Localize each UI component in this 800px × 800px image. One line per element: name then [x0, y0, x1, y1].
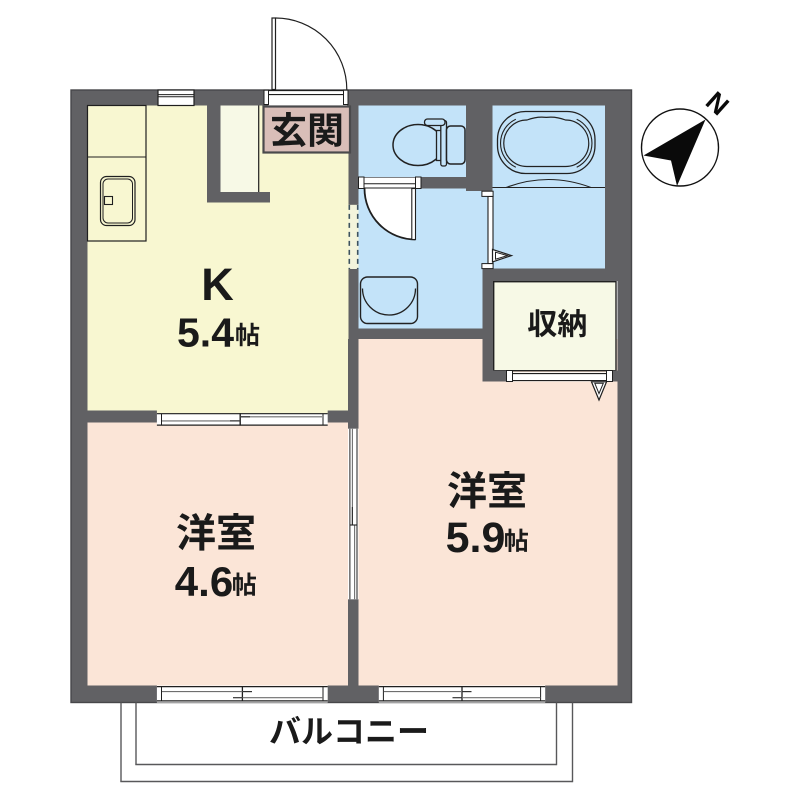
svg-text:4.6: 4.6 — [175, 558, 233, 605]
svg-text:5.9: 5.9 — [446, 514, 506, 562]
svg-text:5.4: 5.4 — [177, 309, 234, 355]
svg-text:K: K — [201, 259, 234, 310]
